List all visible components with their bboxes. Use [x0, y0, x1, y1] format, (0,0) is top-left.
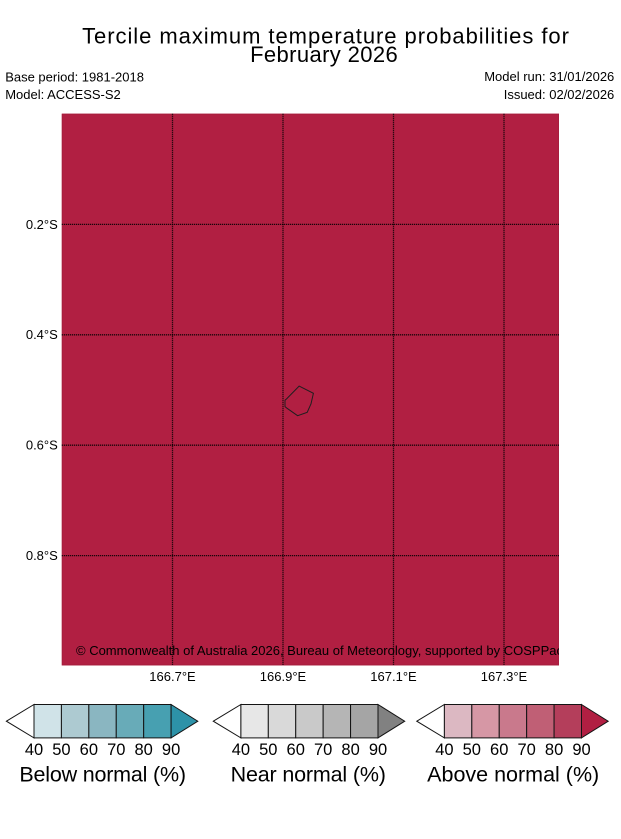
svg-text:80: 80 [341, 741, 359, 759]
svg-text:166.9°E: 166.9°E [260, 669, 307, 684]
svg-text:40: 40 [25, 741, 43, 759]
svg-text:0.8°S: 0.8°S [26, 548, 58, 563]
svg-text:Model: ACCESS-S2: Model: ACCESS-S2 [5, 87, 121, 102]
svg-text:0.6°S: 0.6°S [26, 438, 58, 453]
svg-text:50: 50 [52, 741, 70, 759]
svg-text:50: 50 [259, 741, 277, 759]
svg-text:90: 90 [572, 741, 590, 759]
svg-text:0.2°S: 0.2°S [26, 217, 58, 232]
svg-text:90: 90 [369, 741, 387, 759]
svg-text:166.7°E: 166.7°E [149, 669, 196, 684]
svg-text:Near normal (%): Near normal (%) [231, 762, 386, 786]
svg-text:Below normal (%): Below normal (%) [19, 762, 185, 786]
svg-text:© Commonwealth of Australia 20: © Commonwealth of Australia 2026, Bureau… [76, 643, 563, 658]
svg-text:0.4°S: 0.4°S [26, 327, 58, 342]
svg-text:Base period: 1981-2018: Base period: 1981-2018 [5, 70, 144, 85]
svg-text:Model run: 31/01/2026: Model run: 31/01/2026 [484, 69, 614, 84]
svg-text:Above normal (%): Above normal (%) [427, 762, 599, 786]
svg-text:80: 80 [545, 741, 563, 759]
svg-text:70: 70 [517, 741, 535, 759]
svg-text:50: 50 [463, 741, 481, 759]
svg-text:167.3°E: 167.3°E [481, 669, 528, 684]
svg-text:40: 40 [232, 741, 250, 759]
svg-text:90: 90 [162, 741, 180, 759]
svg-text:167.1°E: 167.1°E [370, 669, 417, 684]
svg-text:80: 80 [135, 741, 153, 759]
svg-text:40: 40 [435, 741, 453, 759]
svg-text:60: 60 [80, 741, 98, 759]
svg-text:70: 70 [107, 741, 125, 759]
svg-text:Issued: 02/02/2026: Issued: 02/02/2026 [504, 87, 615, 102]
svg-text:70: 70 [314, 741, 332, 759]
svg-text:60: 60 [490, 741, 508, 759]
svg-text:February 2026: February 2026 [250, 42, 398, 67]
svg-text:60: 60 [287, 741, 305, 759]
